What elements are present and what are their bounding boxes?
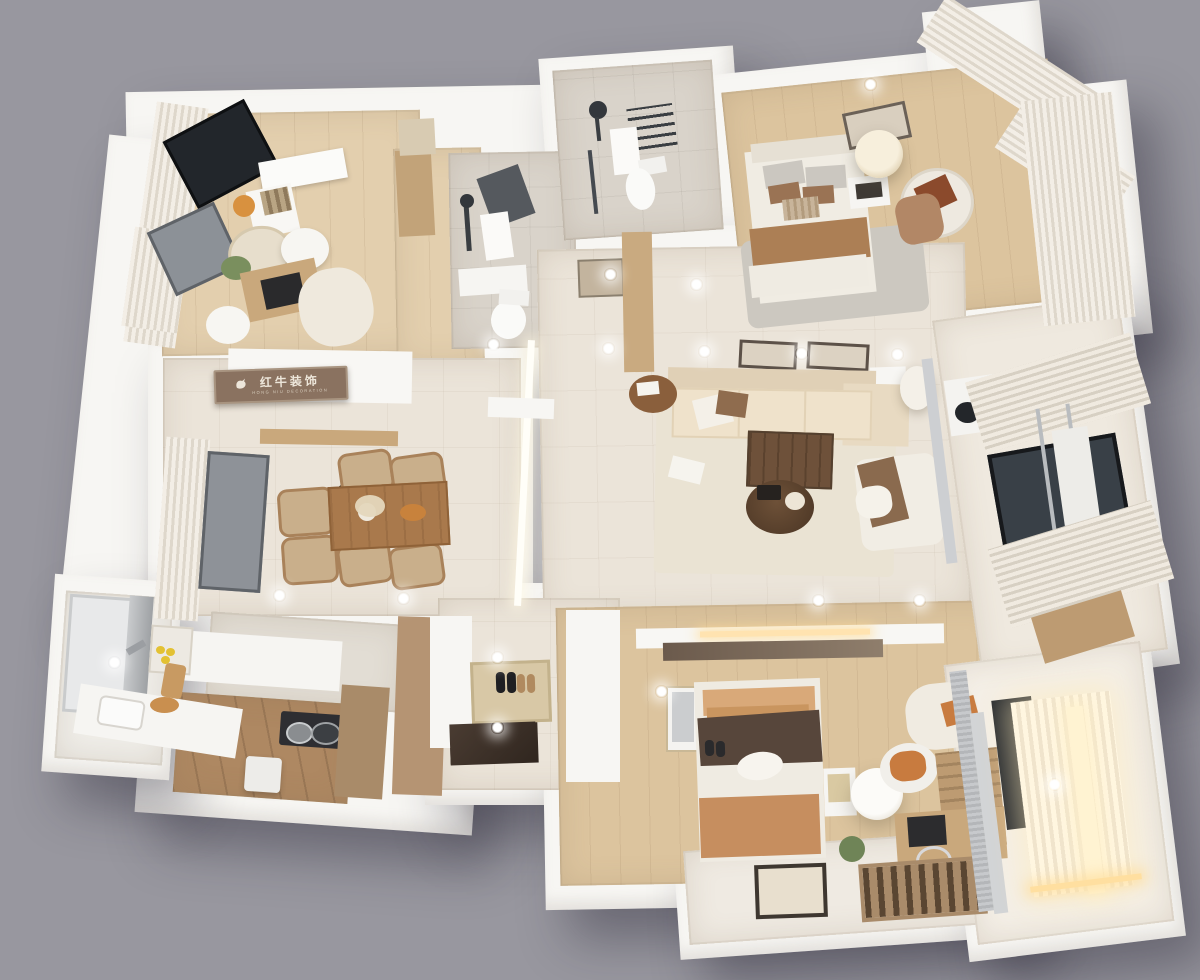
ceiling-light (698, 345, 711, 358)
ceiling-light (913, 594, 926, 607)
master-tv-panel (663, 639, 883, 661)
master-wardrobe-glass (672, 692, 694, 742)
dining-window (198, 451, 269, 593)
living-frame-2 (806, 341, 869, 371)
hallway-door-panel (622, 232, 654, 373)
ceiling-light (273, 589, 286, 602)
study-fruit-bowl (233, 195, 255, 217)
ceiling-light (487, 338, 500, 351)
kitchen-lemon-1 (156, 646, 165, 654)
living-teapot (785, 492, 805, 510)
dining-chair-4 (387, 541, 446, 591)
dining-plate (400, 504, 426, 521)
kitchen-pot-1 (286, 722, 313, 744)
dining-table (327, 481, 450, 551)
brand-name-zh: 红牛装饰 (260, 375, 320, 389)
dining-chair-5 (276, 486, 335, 538)
kitchen-bread (150, 697, 179, 713)
ceiling-light (655, 685, 668, 698)
hallway-ledge (488, 397, 555, 419)
master-plant (839, 836, 865, 862)
ceiling-light (795, 347, 808, 360)
ceiling-light (604, 268, 617, 281)
study-stool (206, 306, 250, 344)
ceiling-light (491, 721, 504, 734)
master-bookshelf (858, 856, 988, 923)
bedroom2-nightstand-front (855, 182, 882, 200)
entry-partition (566, 610, 620, 782)
study-wardrobe (395, 149, 435, 237)
master-nightstand-art (828, 774, 851, 803)
ceiling-light (1048, 778, 1061, 791)
living-side-table-book (636, 381, 659, 396)
entry-shoe-tan-2 (527, 674, 536, 693)
bull-logo-icon (234, 377, 248, 395)
ceiling-light (812, 594, 825, 607)
kitchen-pot-2 (311, 722, 341, 745)
dining-cabinet-wood (260, 429, 398, 446)
kitchen-counter-north (184, 631, 342, 692)
ceiling-light (491, 651, 504, 664)
hallway-wall-art (577, 258, 624, 298)
living-tray (757, 485, 781, 500)
master-slipper-2 (716, 741, 726, 757)
study-wardrobe-upper (398, 118, 436, 156)
ceiling-light (108, 656, 121, 669)
ceiling-light (864, 78, 877, 91)
bedroom2-pendant-lamp (855, 130, 903, 178)
ceiling-light (891, 348, 904, 361)
master-slipper-1 (705, 740, 715, 756)
ceiling-light (602, 342, 615, 355)
ceiling-light (397, 592, 410, 605)
bedroom2-pillow-striped (782, 196, 820, 221)
master-leaning-art (754, 863, 828, 919)
kitchen-cabinet-mid (334, 684, 390, 799)
master-laptop (907, 815, 947, 848)
kitchen-lemon-2 (166, 648, 175, 656)
kitchen-stool (244, 756, 282, 793)
bath1-toilet-tank (499, 289, 530, 306)
floorplan-render: 红牛装饰 HONG NIU DECORATION (0, 0, 1200, 980)
entry-shoe-tan-1 (517, 674, 526, 693)
living-pillow-brown (715, 390, 748, 418)
living-frame-1 (738, 340, 797, 371)
master-blanket (699, 794, 821, 858)
bath1-shower-head (460, 194, 474, 208)
dining-flowers (355, 495, 385, 517)
entry-shoe-black-2 (507, 672, 517, 693)
ceiling-light (690, 278, 703, 291)
brand-sign: 红牛装饰 HONG NIU DECORATION (213, 366, 348, 405)
entry-shoe-black-1 (496, 672, 506, 693)
brand-name-en: HONG NIU DECORATION (252, 388, 328, 395)
